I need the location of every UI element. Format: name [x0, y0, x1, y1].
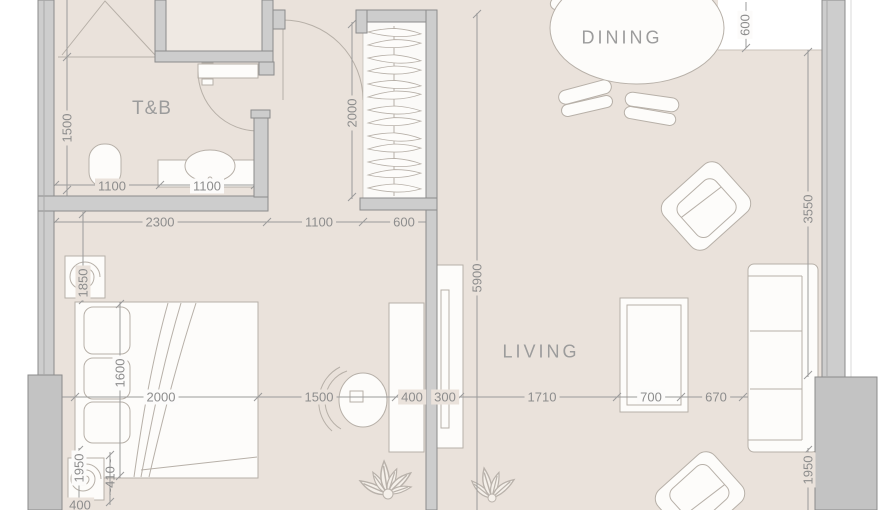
dim-dining-depth: 600 [738, 11, 753, 39]
dim-left-410: ~410~ [103, 456, 118, 499]
dim-gap-670: 670 [702, 390, 730, 405]
dim-hall-top: 1100 [302, 215, 336, 230]
tv-console [437, 265, 463, 448]
floor-plan-drawing [0, 0, 880, 510]
dim-bedroom-top: 2300 [143, 215, 178, 230]
dim-mid-1710: 1710 [525, 390, 560, 405]
dim-mid-300: 300 [431, 390, 459, 405]
dim-closet-top: 600 [390, 215, 418, 230]
dim-bed-width: 1600 [113, 356, 128, 391]
dim-mid-400: 400 [398, 390, 426, 405]
dim-bath-width: 1500 [60, 111, 75, 146]
room-label-bathroom: T&B [132, 98, 172, 120]
dim-mid-1500: 1500 [302, 390, 337, 405]
dim-living-right: 3550 [801, 192, 816, 227]
floor-plan: T&B DINING LIVING 1500 1100 1100 2300 11… [0, 0, 880, 510]
dim-table-700: 700 [637, 390, 665, 405]
room-label-living: LIVING [502, 342, 579, 363]
desk [389, 303, 424, 452]
dim-left-1950: 1950 [72, 451, 87, 486]
dim-bath-right: 1100 [190, 179, 224, 194]
dim-left-400: 400 [66, 498, 94, 510]
dim-living-length: 5900 [470, 261, 485, 296]
dim-bed-offset: 1850 [76, 266, 91, 301]
dim-closet-length: 2000 [345, 96, 360, 131]
closet [363, 22, 426, 198]
dim-bed-length: 2000 [144, 390, 179, 405]
room-label-dining: DINING [582, 28, 663, 49]
dim-right-1950: 1950 [801, 453, 816, 488]
dim-bath-left: 1100 [95, 179, 129, 194]
